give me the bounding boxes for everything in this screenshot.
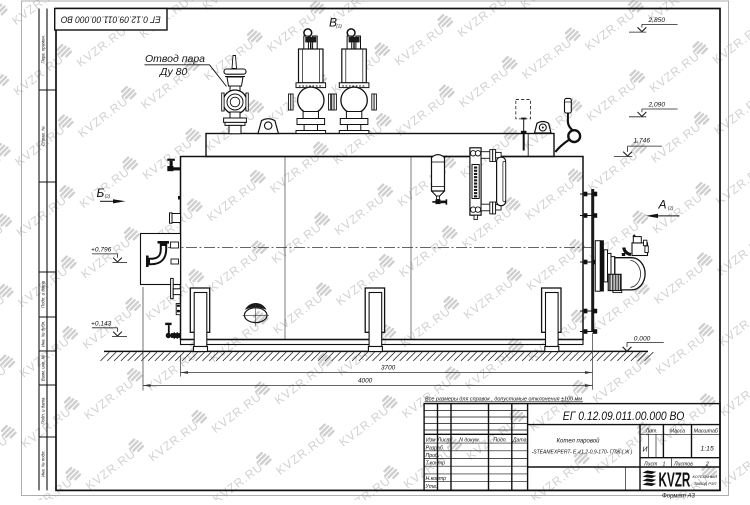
svg-text:KVZR.RU: KVZR.RU <box>272 361 328 408</box>
svg-text:Б: Б <box>97 186 105 200</box>
svg-text:KVZR.RU: KVZR.RU <box>207 319 263 366</box>
svg-text:И: И <box>643 447 649 454</box>
svg-text:ЕГ 0.12.09.011.00.000 ВО: ЕГ 0.12.09.011.00.000 ВО <box>60 14 161 25</box>
svg-text:KVZR.RU: KVZR.RU <box>146 418 202 465</box>
svg-text:Дата: Дата <box>512 437 527 443</box>
svg-text:KVZR.RU: KVZR.RU <box>0 221 6 268</box>
svg-text:KVZR.RU: KVZR.RU <box>204 178 260 225</box>
svg-text:KVZR.RU: KVZR.RU <box>717 373 750 420</box>
svg-text:Котел паровой: Котел паровой <box>556 438 600 445</box>
svg-text:(2): (2) <box>105 194 111 199</box>
svg-text:KVZR.RU: KVZR.RU <box>0 10 2 57</box>
svg-text:КОТЕЛЬНЫЙ: КОТЕЛЬНЫЙ <box>693 474 718 479</box>
svg-text:(2): (2) <box>336 24 342 29</box>
svg-text:KVZR.RU: KVZR.RU <box>20 475 76 500</box>
svg-text:KVZR.RU: KVZR.RU <box>716 302 750 349</box>
svg-text:4000: 4000 <box>358 377 373 384</box>
svg-text:KVZR.RU: KVZR.RU <box>392 22 448 69</box>
svg-text:3700: 3700 <box>381 364 396 371</box>
svg-text:KVZR.RU: KVZR.RU <box>582 7 638 54</box>
svg-text:Н.контр: Н.контр <box>426 476 447 482</box>
svg-text:Т.контр: Т.контр <box>426 461 446 467</box>
svg-text:Формат A3: Формат A3 <box>662 493 695 499</box>
svg-text:KVZR.RU: KVZR.RU <box>78 235 134 282</box>
svg-text:0,000: 0,000 <box>634 336 651 343</box>
svg-text:KVZR.RU: KVZR.RU <box>647 49 703 96</box>
svg-text:2,090: 2,090 <box>648 102 666 109</box>
svg-text:2,850: 2,850 <box>648 17 666 24</box>
svg-text:KVZR.RU: KVZR.RU <box>81 376 137 423</box>
svg-text:Проб.: Проб. <box>426 453 440 459</box>
svg-text:Инв. № подл.: Инв. № подл. <box>41 450 46 477</box>
svg-text:KVZR.RU: KVZR.RU <box>0 433 11 480</box>
svg-text:KVZR.RU: KVZR.RU <box>269 220 325 267</box>
svg-text:N докум.: N докум. <box>459 437 480 443</box>
svg-text:KVZR.RU: KVZR.RU <box>210 460 266 500</box>
svg-text:Взам. инв. №: Взам. инв. № <box>41 354 46 381</box>
svg-text:Подп.: Подп. <box>493 437 507 443</box>
svg-text:(2): (2) <box>668 206 674 211</box>
svg-text:KVZR.RU: KVZR.RU <box>209 389 265 436</box>
svg-text:Справ. №: Справ. № <box>41 126 46 146</box>
svg-text:KVZR.RU: KVZR.RU <box>77 164 133 211</box>
svg-text:1:15: 1:15 <box>701 446 714 453</box>
svg-text:+0,143: +0,143 <box>91 321 112 328</box>
svg-text:KVZR.RU: KVZR.RU <box>653 331 709 378</box>
svg-text:KVZR.RU: KVZR.RU <box>585 148 641 195</box>
svg-text:KVZR.RU: KVZR.RU <box>522 176 578 223</box>
svg-text:KVZR.RU: KVZR.RU <box>0 292 8 339</box>
svg-text:Все размеры для справок , доп: Все размеры для справок , допустимые отк… <box>425 396 582 402</box>
svg-text:KVZR.RU: KVZR.RU <box>144 347 200 394</box>
svg-text:Лист: Лист <box>437 437 452 443</box>
svg-text:KVZR.RU: KVZR.RU <box>528 458 584 500</box>
svg-text:KVZR.RU: KVZR.RU <box>18 404 74 451</box>
svg-text:KVZR.RU: KVZR.RU <box>206 248 262 295</box>
svg-text:Изм: Изм <box>426 437 436 443</box>
svg-text:KVZR.RU: KVZR.RU <box>519 35 575 82</box>
svg-text:KVZR.RU: KVZR.RU <box>0 362 9 409</box>
svg-text:Отвод пара: Отвод пара <box>145 53 205 65</box>
svg-text:Разраб.: Разраб. <box>426 445 445 451</box>
svg-text:Лист: Лист <box>643 461 658 467</box>
svg-text:ЕГ 0.12.09.011.00.000 ВО: ЕГ 0.12.09.011.00.000 ВО <box>563 411 685 423</box>
svg-text:KVZR.RU: KVZR.RU <box>200 0 256 13</box>
svg-text:KVZR.RU: KVZR.RU <box>398 304 454 351</box>
svg-text:KVZR.RU: KVZR.RU <box>0 151 5 198</box>
svg-text:Утв.: Утв. <box>426 484 438 490</box>
svg-text:KVZR.RU: KVZR.RU <box>711 91 750 138</box>
svg-text:KVZR.RU: KVZR.RU <box>273 431 329 478</box>
svg-text:-STEAMEXPERT- Е -(1,2-0,9-170-: -STEAMEXPERT- Е -(1,2-0,9-170- ГЛЖ ( Ж ) <box>532 450 633 456</box>
svg-text:KVZR.RU: KVZR.RU <box>83 446 139 493</box>
svg-text:Масса: Масса <box>670 429 685 435</box>
svg-text:KVZR.RU: KVZR.RU <box>455 0 511 40</box>
svg-text:KVZR.RU: KVZR.RU <box>590 359 646 406</box>
svg-text:KVZR.RU: KVZR.RU <box>648 119 704 166</box>
svg-text:Масштаб: Масштаб <box>694 429 719 435</box>
svg-text:KVZR.RU: KVZR.RU <box>456 64 512 111</box>
svg-text:KVZR.RU: KVZR.RU <box>524 247 580 294</box>
svg-text:2: 2 <box>705 461 709 467</box>
svg-text:+0,796: +0,796 <box>91 247 112 254</box>
svg-text:KVZR.RU: KVZR.RU <box>80 305 136 352</box>
svg-text:KVZR.RU: KVZR.RU <box>336 403 392 450</box>
svg-text:ЗАВОД РЭП: ЗАВОД РЭП <box>694 481 717 486</box>
svg-text:KVZR.RU: KVZR.RU <box>713 161 750 208</box>
svg-text:Перв. примен.: Перв. примен. <box>41 35 46 64</box>
svg-text:Лит.: Лит. <box>645 429 658 435</box>
svg-text:KVZR.RU: KVZR.RU <box>461 275 517 322</box>
svg-text:Листов: Листов <box>673 461 693 467</box>
svg-text:KVZR.RU: KVZR.RU <box>719 443 750 490</box>
svg-text:KVZR.RU: KVZR.RU <box>518 0 574 11</box>
svg-text:KVZR.RU: KVZR.RU <box>14 193 70 240</box>
svg-text:KVZR.RU: KVZR.RU <box>651 260 707 307</box>
svg-text:Ду 80: Ду 80 <box>159 66 188 78</box>
svg-text:KVZR.RU: KVZR.RU <box>75 94 131 141</box>
svg-text:KVZR.RU: KVZR.RU <box>0 80 3 127</box>
svg-text:KVZR: KVZR <box>659 468 691 491</box>
svg-text:KVZR.RU: KVZR.RU <box>396 233 452 280</box>
svg-text:KVZR.RU: KVZR.RU <box>459 205 515 252</box>
svg-text:KVZR.RU: KVZR.RU <box>270 290 326 337</box>
svg-text:Подп. и дата: Подп. и дата <box>41 397 46 425</box>
svg-text:KVZR.RU: KVZR.RU <box>710 20 750 67</box>
svg-text:Подп. и дата: Подп. и дата <box>41 280 46 308</box>
svg-text:KVZR.RU: KVZR.RU <box>332 191 388 238</box>
svg-text:KVZR.RU: KVZR.RU <box>393 92 449 139</box>
svg-text:А: А <box>658 198 667 212</box>
svg-text:KVZR.RU: KVZR.RU <box>338 473 394 500</box>
svg-text:1,746: 1,746 <box>634 138 651 145</box>
svg-text:1: 1 <box>663 461 666 467</box>
svg-text:Инв. № дубл.: Инв. № дубл. <box>41 321 46 347</box>
